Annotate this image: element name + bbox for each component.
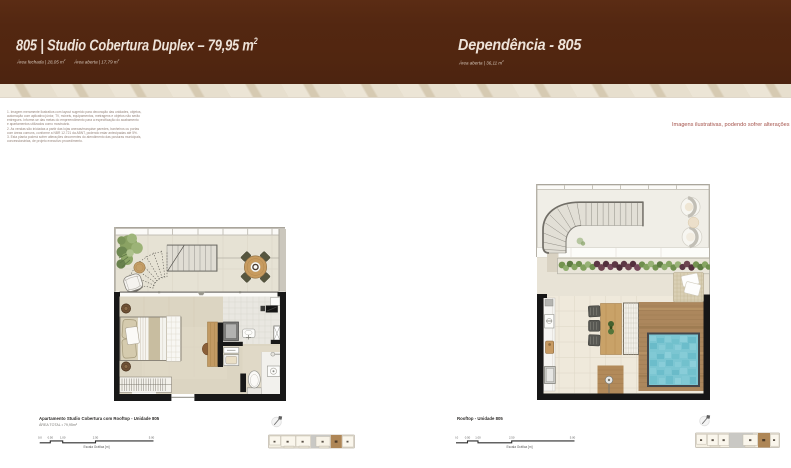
- svg-text:5.00: 5.00: [149, 435, 155, 439]
- svg-text:0.50: 0.50: [465, 435, 471, 439]
- svg-text:Escala Gráfica [m]: Escala Gráfica [m]: [83, 445, 109, 449]
- svg-text:0.50: 0.50: [48, 435, 54, 439]
- svg-text:1.00: 1.00: [60, 435, 66, 439]
- svg-text:2.50: 2.50: [509, 435, 515, 439]
- svg-text:1.00: 1.00: [475, 435, 481, 439]
- svg-text:5.00: 5.00: [570, 435, 576, 439]
- svg-text:2.50: 2.50: [93, 435, 99, 439]
- svg-text:0.0: 0.0: [455, 435, 459, 439]
- svg-text:Escala Gráfica [m]: Escala Gráfica [m]: [506, 445, 532, 449]
- svg-text:0.0: 0.0: [38, 435, 42, 439]
